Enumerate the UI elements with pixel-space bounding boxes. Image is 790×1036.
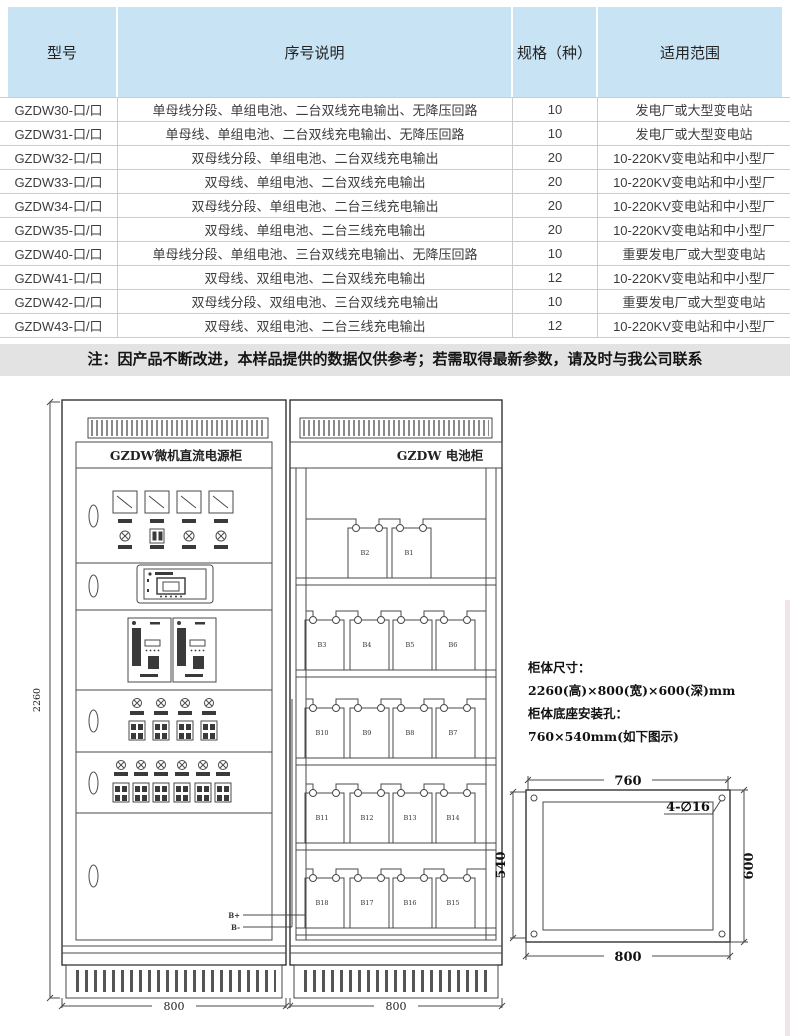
- description-cell: 双母线、单组电池、二台双线充电输出: [118, 170, 513, 193]
- table-row: GZDW41-口/口 双母线、双组电池、二台双线充电输出 12 10-220KV…: [0, 266, 790, 290]
- height-dimension: 2260: [32, 399, 60, 1001]
- range-cell: 发电厂或大型变电站: [598, 122, 790, 145]
- power-cabinet-title: GZDW微机直流电源柜: [110, 448, 243, 463]
- battery-label: B16: [403, 899, 416, 907]
- range-cell: 发电厂或大型变电站: [598, 98, 790, 121]
- terminal-neg-label: B-: [231, 923, 240, 932]
- model-cell: GZDW43-口/口: [0, 314, 118, 337]
- cabinet-drawing: 2260 GZDW微机直流电源柜: [0, 386, 790, 1036]
- battery-label: B4: [363, 641, 372, 649]
- spec-cell: 20: [513, 218, 598, 241]
- mounting-right-dim-label: 600: [742, 852, 757, 879]
- table-row: GZDW30-口/口 单母线分段、单组电池、二台双线充电输出、无降压回路 10 …: [0, 98, 790, 122]
- model-cell: GZDW33-口/口: [0, 170, 118, 193]
- page-edge: [785, 600, 790, 1036]
- description-cell: 单母线、单组电池、二台双线充电输出、无降压回路: [118, 122, 513, 145]
- battery-cell: B3: [305, 617, 344, 671]
- battery-label: B2: [361, 549, 370, 557]
- battery-label: B11: [315, 814, 328, 822]
- spec-line-3: 柜体底座安装孔：: [527, 706, 628, 721]
- right-width-dim-label: 800: [386, 1000, 407, 1013]
- battery-cell: B10: [305, 705, 344, 759]
- mounting-left-dim-label: 540: [494, 851, 509, 878]
- range-cell: 重要发电厂或大型变电站: [598, 242, 790, 265]
- cabinet-drawing-svg: 2260 GZDW微机直流电源柜: [0, 386, 790, 1036]
- note-bar: 注：因产品不断改进，本样品提供的数据仅供参考；若需取得最新参数，请及时与我公司联…: [0, 344, 790, 376]
- spec-cell: 10: [513, 122, 598, 145]
- monitor-module: [137, 565, 213, 603]
- spec-cell: 10: [513, 242, 598, 265]
- spec-cell: 20: [513, 170, 598, 193]
- table-row: GZDW33-口/口 双母线、单组电池、二台双线充电输出 20 10-220KV…: [0, 170, 790, 194]
- range-cell: 10-220KV变电站和中小型厂: [598, 146, 790, 169]
- battery-label: B13: [403, 814, 416, 822]
- left-width-dim-label: 800: [164, 1000, 185, 1013]
- mounting-bottom-dim-label: 800: [614, 950, 641, 965]
- catalog-page: 型号 序号说明 规格（种） 适用范围 GZDW30-口/口 单母线分段、单组电池…: [0, 0, 790, 1036]
- description-cell: 单母线分段、单组电池、二台双线充电输出、无降压回路: [118, 98, 513, 121]
- mounting-holes-label: 4-∅16: [666, 800, 710, 815]
- battery-cell: B8: [393, 705, 432, 759]
- mounting-top-dim-label: 760: [614, 774, 641, 789]
- height-dim-label: 2260: [32, 688, 43, 712]
- breaker-row-1: [129, 699, 217, 741]
- door-handles: [89, 505, 98, 887]
- model-cell: GZDW30-口/口: [0, 98, 118, 121]
- spec-cell: 12: [513, 266, 598, 289]
- battery-cabinet-title: GZDW 电池柜: [397, 448, 484, 463]
- range-cell: 10-220KV变电站和中小型厂: [598, 170, 790, 193]
- battery-label: B17: [360, 899, 373, 907]
- model-cell: GZDW34-口/口: [0, 194, 118, 217]
- table-row: GZDW43-口/口 双母线、双组电池、二台三线充电输出 12 10-220KV…: [0, 314, 790, 338]
- charger-modules: [128, 618, 216, 682]
- column-header-range: 适用范围: [598, 7, 782, 97]
- battery-cell: B6: [436, 617, 475, 671]
- battery-label: B14: [446, 814, 459, 822]
- battery-cell: B2: [348, 525, 387, 579]
- mounting-right-dimension: 600: [730, 787, 757, 945]
- battery-cell: B13: [393, 790, 432, 844]
- description-cell: 双母线、双组电池、二台三线充电输出: [118, 314, 513, 337]
- mounting-top-dimension: 760: [525, 774, 731, 790]
- battery-cell: B4: [350, 617, 389, 671]
- battery-label: B3: [318, 641, 327, 649]
- table-row: GZDW35-口/口 双母线、单组电池、二台三线充电输出 20 10-220KV…: [0, 218, 790, 242]
- range-cell: 10-220KV变电站和中小型厂: [598, 218, 790, 241]
- battery-cell: B16: [393, 875, 432, 929]
- model-cell: GZDW40-口/口: [0, 242, 118, 265]
- cabinet-spec-text: 柜体尺寸： 2260(高)×800(宽)×600(深)mm 柜体底座安装孔： 7…: [527, 660, 735, 744]
- model-cell: GZDW41-口/口: [0, 266, 118, 289]
- mounting-bottom-dimension: 800: [523, 942, 733, 965]
- spec-cell: 12: [513, 314, 598, 337]
- battery-cabinet: GZDW 电池柜 B2 B1 B3 B4 B5 B6 B10: [287, 400, 505, 1013]
- battery-label: B8: [406, 729, 415, 737]
- mounting-left-dimension: 540: [494, 789, 526, 941]
- battery-label: B5: [406, 641, 415, 649]
- column-header-model: 型号: [8, 7, 118, 97]
- battery-label: B15: [446, 899, 459, 907]
- battery-cell: B1: [392, 525, 431, 579]
- battery-cell: B14: [436, 790, 475, 844]
- model-cell: GZDW42-口/口: [0, 290, 118, 313]
- right-width-dimension: 800: [287, 998, 505, 1013]
- column-header-description: 序号说明: [118, 7, 513, 97]
- range-cell: 10-220KV变电站和中小型厂: [598, 194, 790, 217]
- table-row: GZDW40-口/口 单母线分段、单组电池、三台双线充电输出、无降压回路 10 …: [0, 242, 790, 266]
- battery-cell: B15: [436, 875, 475, 929]
- description-cell: 双母线、单组电池、二台三线充电输出: [118, 218, 513, 241]
- description-cell: 双母线分段、单组电池、二台三线充电输出: [118, 194, 513, 217]
- battery-cell: B5: [393, 617, 432, 671]
- battery-label: B9: [363, 729, 372, 737]
- table-row: GZDW34-口/口 双母线分段、单组电池、二台三线充电输出 20 10-220…: [0, 194, 790, 218]
- product-table-body: GZDW30-口/口 单母线分段、单组电池、二台双线充电输出、无降压回路 10 …: [0, 97, 790, 338]
- spec-line-2: 2260(高)×800(宽)×600(深)mm: [528, 683, 735, 698]
- battery-label: B10: [315, 729, 328, 737]
- battery-label: B18: [315, 899, 328, 907]
- model-cell: GZDW32-口/口: [0, 146, 118, 169]
- range-cell: 10-220KV变电站和中小型厂: [598, 314, 790, 337]
- battery-terminals: B+ B-: [228, 699, 306, 932]
- spec-cell: 20: [513, 194, 598, 217]
- battery-cell: B18: [305, 875, 344, 929]
- battery-label: B7: [449, 729, 458, 737]
- column-header-spec: 规格（种）: [513, 7, 598, 97]
- table-row: GZDW31-口/口 单母线、单组电池、二台双线充电输出、无降压回路 10 发电…: [0, 122, 790, 146]
- meter-icons: [113, 491, 233, 523]
- battery-cell: B9: [350, 705, 389, 759]
- table-header-row: 型号 序号说明 规格（种） 适用范围: [8, 7, 782, 97]
- description-cell: 单母线分段、单组电池、三台双线充电输出、无降压回路: [118, 242, 513, 265]
- description-cell: 双母线、双组电池、二台双线充电输出: [118, 266, 513, 289]
- spec-line-1: 柜体尺寸：: [527, 660, 591, 675]
- spec-cell: 20: [513, 146, 598, 169]
- table-row: GZDW42-口/口 双母线分段、双组电池、三台双线充电输出 10 重要发电厂或…: [0, 290, 790, 314]
- battery-label: B6: [449, 641, 458, 649]
- mounting-hole-diagram: 760 800 540 600 4-∅16: [494, 774, 757, 965]
- description-cell: 双母线分段、单组电池、二台双线充电输出: [118, 146, 513, 169]
- range-cell: 重要发电厂或大型变电站: [598, 290, 790, 313]
- spec-cell: 10: [513, 98, 598, 121]
- battery-label: B1: [405, 549, 414, 557]
- battery-cell: B11: [305, 790, 344, 844]
- battery-cell: B7: [436, 705, 475, 759]
- table-row: GZDW32-口/口 双母线分段、单组电池、二台双线充电输出 20 10-220…: [0, 146, 790, 170]
- model-cell: GZDW31-口/口: [0, 122, 118, 145]
- model-cell: GZDW35-口/口: [0, 218, 118, 241]
- power-cabinet: 2260 GZDW微机直流电源柜: [32, 399, 306, 1013]
- battery-cell: B12: [350, 790, 389, 844]
- battery-label: B12: [360, 814, 373, 822]
- description-cell: 双母线分段、双组电池、三台双线充电输出: [118, 290, 513, 313]
- indicator-lamps: [118, 529, 228, 549]
- spec-line-4: 760×540mm(如下图示): [528, 729, 679, 744]
- range-cell: 10-220KV变电站和中小型厂: [598, 266, 790, 289]
- battery-cell: B17: [350, 875, 389, 929]
- spec-cell: 10: [513, 290, 598, 313]
- terminal-pos-label: B+: [228, 911, 240, 920]
- breaker-row-2: [113, 761, 231, 803]
- left-width-dimension: 800: [59, 998, 289, 1013]
